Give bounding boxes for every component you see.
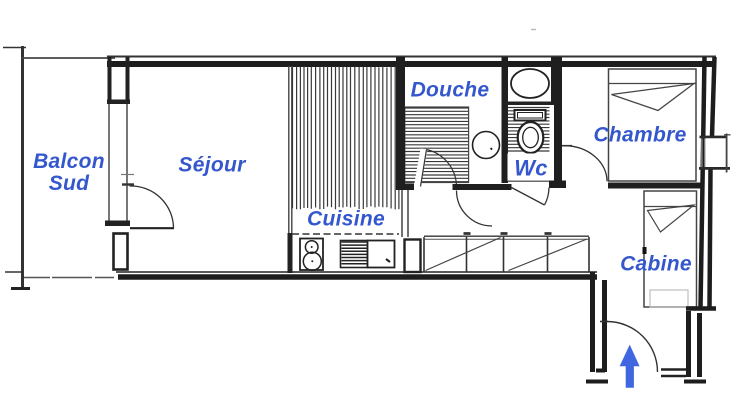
- svg-text:Douche: Douche: [411, 79, 490, 102]
- svg-text:Cuisine: Cuisine: [307, 208, 385, 231]
- svg-text:Séjour: Séjour: [178, 154, 247, 177]
- svg-text:Wc: Wc: [514, 156, 548, 181]
- svg-text:Cabine: Cabine: [620, 253, 692, 276]
- svg-text:Balcon: Balcon: [33, 150, 105, 173]
- svg-text:Sud: Sud: [49, 172, 90, 195]
- svg-text:Chambre: Chambre: [593, 124, 686, 147]
